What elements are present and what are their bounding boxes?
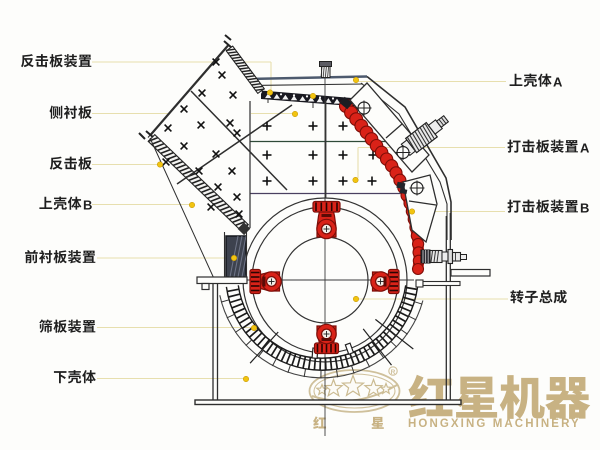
svg-text:HONGXING MACHINERY: HONGXING MACHINERY — [408, 418, 581, 430]
svg-text:B: B — [580, 201, 589, 216]
svg-text:B: B — [83, 198, 92, 213]
svg-text:A: A — [580, 141, 590, 156]
svg-text:R: R — [391, 369, 396, 376]
svg-text:A: A — [553, 75, 563, 90]
